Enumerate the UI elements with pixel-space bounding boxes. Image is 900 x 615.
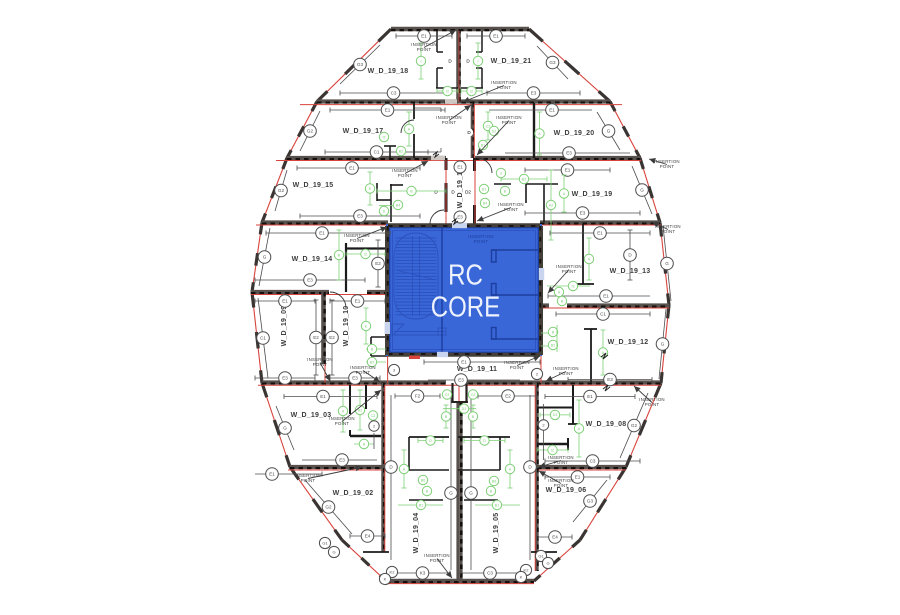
svg-text:C1: C1	[374, 150, 380, 155]
svg-text:G: G	[665, 261, 669, 266]
svg-text:POINT: POINT	[474, 239, 489, 244]
svg-text:W_D_19_09: W_D_19_09	[281, 306, 288, 347]
svg-text:W_D_19_21: W_D_19_21	[491, 58, 532, 65]
svg-text:POINT: POINT	[554, 483, 569, 488]
svg-text:G: G	[469, 491, 473, 496]
svg-text:E1: E1	[282, 299, 288, 304]
svg-text:B2: B2	[399, 149, 404, 153]
svg-text:W_D_19_20: W_D_19_20	[554, 130, 595, 137]
svg-text:C2: C2	[371, 414, 376, 418]
svg-text:C1: C1	[600, 312, 606, 317]
svg-text:E3: E3	[339, 458, 345, 463]
svg-text:W_D_19_16: W_D_19_16	[457, 168, 464, 209]
svg-text:E3: E3	[580, 211, 586, 216]
svg-text:D: D	[429, 439, 432, 443]
svg-text:E1: E1	[355, 299, 361, 304]
svg-text:E1: E1	[319, 231, 325, 236]
svg-text:B2: B2	[370, 360, 375, 364]
svg-text:D1: D1	[462, 407, 467, 411]
svg-text:W_D_19_02: W_D_19_02	[333, 490, 374, 497]
svg-text:E3: E3	[357, 214, 363, 219]
svg-text:POINT: POINT	[661, 229, 676, 234]
svg-text:E1: E1	[575, 475, 581, 480]
svg-text:G1: G1	[538, 553, 544, 558]
svg-text:E2: E2	[313, 335, 319, 340]
svg-text:W_D_19_19: W_D_19_19	[572, 191, 613, 198]
svg-text:K: K	[384, 576, 387, 581]
svg-text:G: G	[661, 342, 665, 347]
svg-text:B1: B1	[495, 503, 500, 507]
svg-text:G1: G1	[322, 540, 328, 545]
svg-text:G2: G2	[325, 505, 332, 510]
svg-text:D: D	[483, 439, 486, 443]
svg-text:E3: E3	[531, 91, 537, 96]
svg-text:RC: RC	[448, 258, 483, 291]
svg-text:E3: E3	[307, 278, 313, 283]
svg-text:E3: E3	[607, 377, 613, 382]
svg-text:E1: E1	[320, 394, 326, 399]
svg-text:K: K	[520, 574, 523, 579]
svg-text:I2: I2	[446, 89, 449, 93]
svg-text:E3: E3	[566, 151, 572, 156]
svg-text:G3: G3	[549, 60, 556, 65]
svg-text:G: G	[449, 491, 453, 496]
svg-text:F2: F2	[415, 394, 421, 399]
svg-text:C2: C2	[445, 393, 450, 397]
svg-text:POINT: POINT	[301, 478, 316, 483]
svg-text:E1: E1	[385, 108, 391, 113]
svg-text:E1: E1	[461, 360, 467, 365]
svg-text:G2: G2	[278, 188, 285, 193]
svg-text:W_D_19_18: W_D_19_18	[368, 68, 409, 75]
svg-text:E1: E1	[603, 294, 609, 299]
svg-text:POINT: POINT	[417, 47, 432, 52]
svg-text:B1: B1	[482, 187, 487, 191]
svg-text:D2: D2	[465, 190, 471, 195]
svg-text:E4: E4	[552, 535, 558, 540]
svg-text:C2: C2	[471, 393, 476, 397]
svg-text:3: 3	[500, 171, 502, 175]
svg-text:E1: E1	[565, 168, 571, 173]
svg-text:D2: D2	[492, 129, 497, 133]
svg-text:W_D_19_15: W_D_19_15	[293, 182, 334, 189]
svg-text:I2: I2	[551, 448, 554, 452]
svg-text:G3: G3	[357, 62, 364, 67]
svg-text:E3: E3	[352, 376, 358, 381]
svg-text:POINT: POINT	[442, 120, 457, 125]
svg-text:B2: B2	[551, 343, 556, 347]
svg-text:E4: E4	[365, 534, 371, 539]
svg-text:K2: K2	[524, 567, 530, 572]
svg-text:E1: E1	[457, 165, 463, 170]
svg-text:G: G	[332, 549, 335, 554]
svg-text:E2: E2	[505, 394, 511, 399]
svg-text:G: G	[283, 426, 287, 431]
svg-text:G: G	[640, 188, 644, 193]
svg-text:POINT: POINT	[398, 173, 413, 178]
svg-text:D3: D3	[553, 413, 558, 417]
svg-text:C3: C3	[487, 571, 493, 576]
svg-text:A2: A2	[358, 408, 363, 412]
svg-text:W_D_19_04: W_D_19_04	[413, 513, 420, 554]
svg-text:B6: B6	[492, 479, 497, 483]
svg-text:G: G	[263, 255, 267, 260]
svg-text:POINT: POINT	[510, 365, 525, 370]
svg-text:G2: G2	[631, 423, 638, 428]
svg-text:C3: C3	[590, 459, 596, 464]
svg-text:B4: B4	[483, 201, 488, 205]
svg-text:B2: B2	[522, 177, 527, 181]
svg-text:W_D_19_12: W_D_19_12	[608, 339, 649, 346]
svg-text:E3: E3	[458, 378, 464, 383]
svg-text:W_D_19_14: W_D_19_14	[292, 256, 333, 263]
svg-text:W_D_19_08: W_D_19_08	[586, 421, 627, 428]
svg-text:E2: E2	[329, 335, 335, 340]
svg-text:I: I	[420, 59, 421, 63]
svg-text:B1: B1	[419, 503, 424, 507]
svg-text:E1: E1	[587, 394, 593, 399]
svg-text:W_D_19_03: W_D_19_03	[291, 412, 332, 419]
svg-text:E1: E1	[269, 472, 275, 477]
svg-text:K2: K2	[390, 569, 396, 574]
svg-text:E1: E1	[549, 108, 555, 113]
svg-text:E1: E1	[349, 166, 355, 171]
svg-text:POINT: POINT	[660, 164, 675, 169]
svg-text:K3: K3	[420, 571, 426, 576]
svg-text:W_D_19_10: W_D_19_10	[343, 306, 350, 347]
svg-text:G: G	[546, 560, 549, 565]
svg-text:I: I	[477, 59, 478, 63]
svg-text:POINT: POINT	[350, 238, 365, 243]
svg-text:C1: C1	[260, 336, 266, 341]
svg-text:POINT: POINT	[335, 421, 350, 426]
svg-text:A2: A2	[549, 203, 554, 207]
svg-text:G3: G3	[587, 499, 594, 504]
svg-text:E1: E1	[597, 231, 603, 236]
svg-text:E2: E2	[375, 261, 381, 266]
svg-text:CORE: CORE	[431, 290, 500, 323]
svg-text:B6: B6	[421, 478, 426, 482]
svg-text:G2: G2	[307, 129, 314, 134]
svg-text:C2: C2	[486, 124, 491, 128]
svg-text:W_D_19_05: W_D_19_05	[493, 513, 500, 554]
svg-text:POINT: POINT	[645, 402, 660, 407]
svg-text:E3: E3	[282, 376, 288, 381]
svg-text:E3: E3	[457, 215, 463, 220]
svg-text:I3: I3	[571, 284, 574, 288]
svg-text:I2: I2	[470, 89, 473, 93]
svg-text:E1: E1	[493, 34, 499, 39]
svg-text:E1: E1	[421, 34, 427, 39]
svg-text:I2: I2	[382, 135, 385, 139]
svg-text:C3: C3	[391, 91, 397, 96]
svg-text:I2: I2	[364, 252, 367, 256]
svg-text:G: G	[607, 129, 611, 134]
svg-text:B4: B4	[396, 203, 401, 207]
svg-text:D: D	[383, 209, 386, 213]
svg-text:W_D_19_17: W_D_19_17	[343, 128, 384, 135]
